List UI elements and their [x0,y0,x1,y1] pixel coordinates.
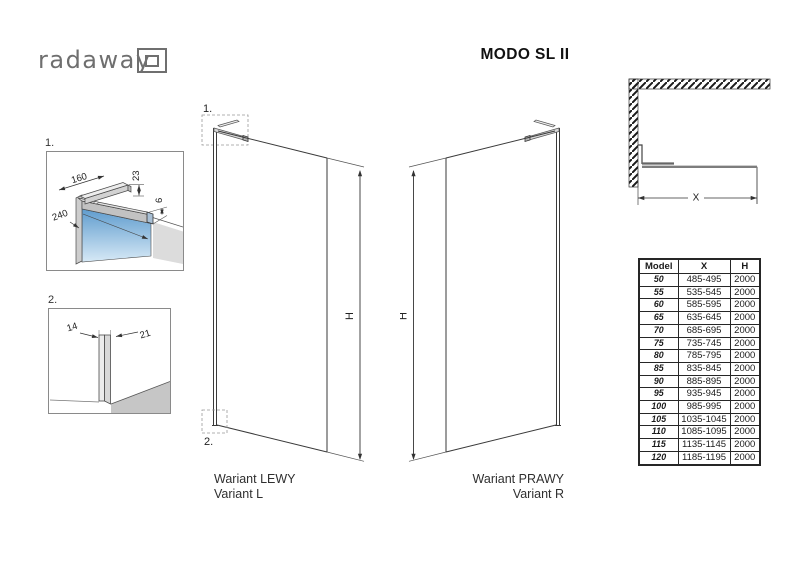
table-cell: 2000 [730,274,760,287]
table-cell: 2000 [730,286,760,299]
detail-2-drawing: 14 21 [49,309,170,413]
variant-right-caption-en: Variant R [400,487,564,502]
detail-1-drawing: 160 23 240 [47,152,183,270]
wall-profile [212,128,218,426]
table-cell: 685-695 [678,324,730,337]
wall-bracket [214,120,248,142]
wall-profile [76,195,82,264]
dim-21-label: 21 [139,328,152,342]
table-cell: 60 [639,299,678,312]
callout-2-label: 2. [204,436,213,448]
width-dimension-label: X [693,193,700,204]
table-cell: 1035-1045 [678,413,730,426]
table-cell: 55 [639,286,678,299]
height-dimension-label: H [344,312,356,320]
table-cell: 2000 [730,375,760,388]
table-cell: 585-595 [678,299,730,312]
detail-1-callout-label: 1. [45,137,54,149]
dim-6-label: 6 [154,198,165,203]
table-cell: 635-645 [678,312,730,325]
table-row: 75735-7452000 [639,337,760,350]
table-cell: 75 [639,337,678,350]
wall-hatched [629,79,770,187]
dimension-14: 14 [66,321,99,340]
variant-left-drawing: 1. H 2. [195,100,375,470]
extension-line-top [327,158,364,167]
table-cell: 80 [639,350,678,363]
table-row: 80785-7952000 [639,350,760,363]
table-cell: 2000 [730,451,760,464]
table-cell: 100 [639,401,678,414]
dim-14-label: 14 [66,321,79,335]
mirrored-panel [409,120,561,461]
table-row: 100985-9952000 [639,401,760,414]
table-row: 85835-8452000 [639,362,760,375]
table-cell: 2000 [730,413,760,426]
table-cell: 95 [639,388,678,401]
variant-right-caption-pl: Wariant PRAWY [400,472,564,487]
extension-line-bottom [327,452,364,461]
table-cell: 1185-1195 [678,451,730,464]
table-cell: 1085-1095 [678,426,730,439]
callout-1-box [202,115,248,145]
table-cell: 535-545 [678,286,730,299]
height-dimension-label: H [400,312,410,320]
table-cell: 115 [639,439,678,452]
dim-160-label: 160 [70,171,88,186]
table-cell: 1135-1145 [678,439,730,452]
table-row: 1151135-11452000 [639,439,760,452]
detail-1-inset: 160 23 240 [46,151,184,271]
table-cell: 2000 [730,324,760,337]
table-cell: 485-495 [678,274,730,287]
top-view-drawing: X [618,68,790,215]
table-cell: 85 [639,362,678,375]
callout-2-box [202,410,227,433]
table-cell: 2000 [730,337,760,350]
detail-2-callout-label: 2. [48,294,57,306]
height-dimension: H [400,170,416,460]
variant-right-caption: Wariant PRAWY Variant R [400,472,564,502]
table-cell: 2000 [730,426,760,439]
callout-1-label: 1. [203,103,212,115]
table-row: 70685-6952000 [639,324,760,337]
table-cell: 105 [639,413,678,426]
dimension-160: 160 [58,171,104,192]
table-cell: 935-945 [678,388,730,401]
table-row: 50485-4952000 [639,274,760,287]
table-cell: 2000 [730,388,760,401]
table-cell: 2000 [730,350,760,363]
wall-profile [99,330,111,404]
height-dimension: H [344,170,362,460]
table-cell: 50 [639,274,678,287]
width-dimension: X [638,171,757,205]
variant-left-caption-pl: Wariant LEWY [214,472,296,487]
table-row: 1051035-10452000 [639,413,760,426]
brand-logo-text: radaway [38,46,152,74]
col-header-x: X [678,259,730,274]
table-row: 1201185-11952000 [639,451,760,464]
table-cell: 885-895 [678,375,730,388]
table-row: 95935-9452000 [639,388,760,401]
variant-left-caption: Wariant LEWY Variant L [214,472,296,502]
table-cell: 90 [639,375,678,388]
table-cell: 2000 [730,401,760,414]
dim-23-label: 23 [131,170,142,181]
table-cell: 2000 [730,362,760,375]
table-cell: 785-795 [678,350,730,363]
page-title: MODO SL II [425,46,625,64]
spec-sheet: radaway MODO SL II 1. [0,0,800,574]
table-cell: 735-745 [678,337,730,350]
table-cell: 110 [639,426,678,439]
table-cell: 70 [639,324,678,337]
table-row: 60585-5952000 [639,299,760,312]
variant-right-drawing: H [400,100,580,470]
table-cell: 2000 [730,312,760,325]
table-cell: 835-845 [678,362,730,375]
col-header-h: H [730,259,760,274]
col-header-model: Model [639,259,678,274]
glass-outline [217,131,327,452]
detail-2-inset: 14 21 [48,308,171,414]
table-cell: 120 [639,451,678,464]
brand-logo-icon [137,48,167,73]
brand-logo: radaway [38,46,152,74]
table-cell: 2000 [730,299,760,312]
table-cell: 985-995 [678,401,730,414]
dim-240-label: 240 [51,208,70,224]
brand-logo-icon-inner [145,55,159,67]
variant-left-caption-en: Variant L [214,487,296,502]
table-row: 90885-8952000 [639,375,760,388]
dimension-21: 21 [116,328,152,342]
table-row: 1101085-10952000 [639,426,760,439]
table-row: 65635-6452000 [639,312,760,325]
table-cell: 2000 [730,439,760,452]
table-row: 55535-5452000 [639,286,760,299]
wall-face [153,222,183,264]
table-cell: 65 [639,312,678,325]
size-table: Model X H 50485-4952000 55535-5452000 60… [638,258,761,466]
table-header-row: Model X H [639,259,760,274]
